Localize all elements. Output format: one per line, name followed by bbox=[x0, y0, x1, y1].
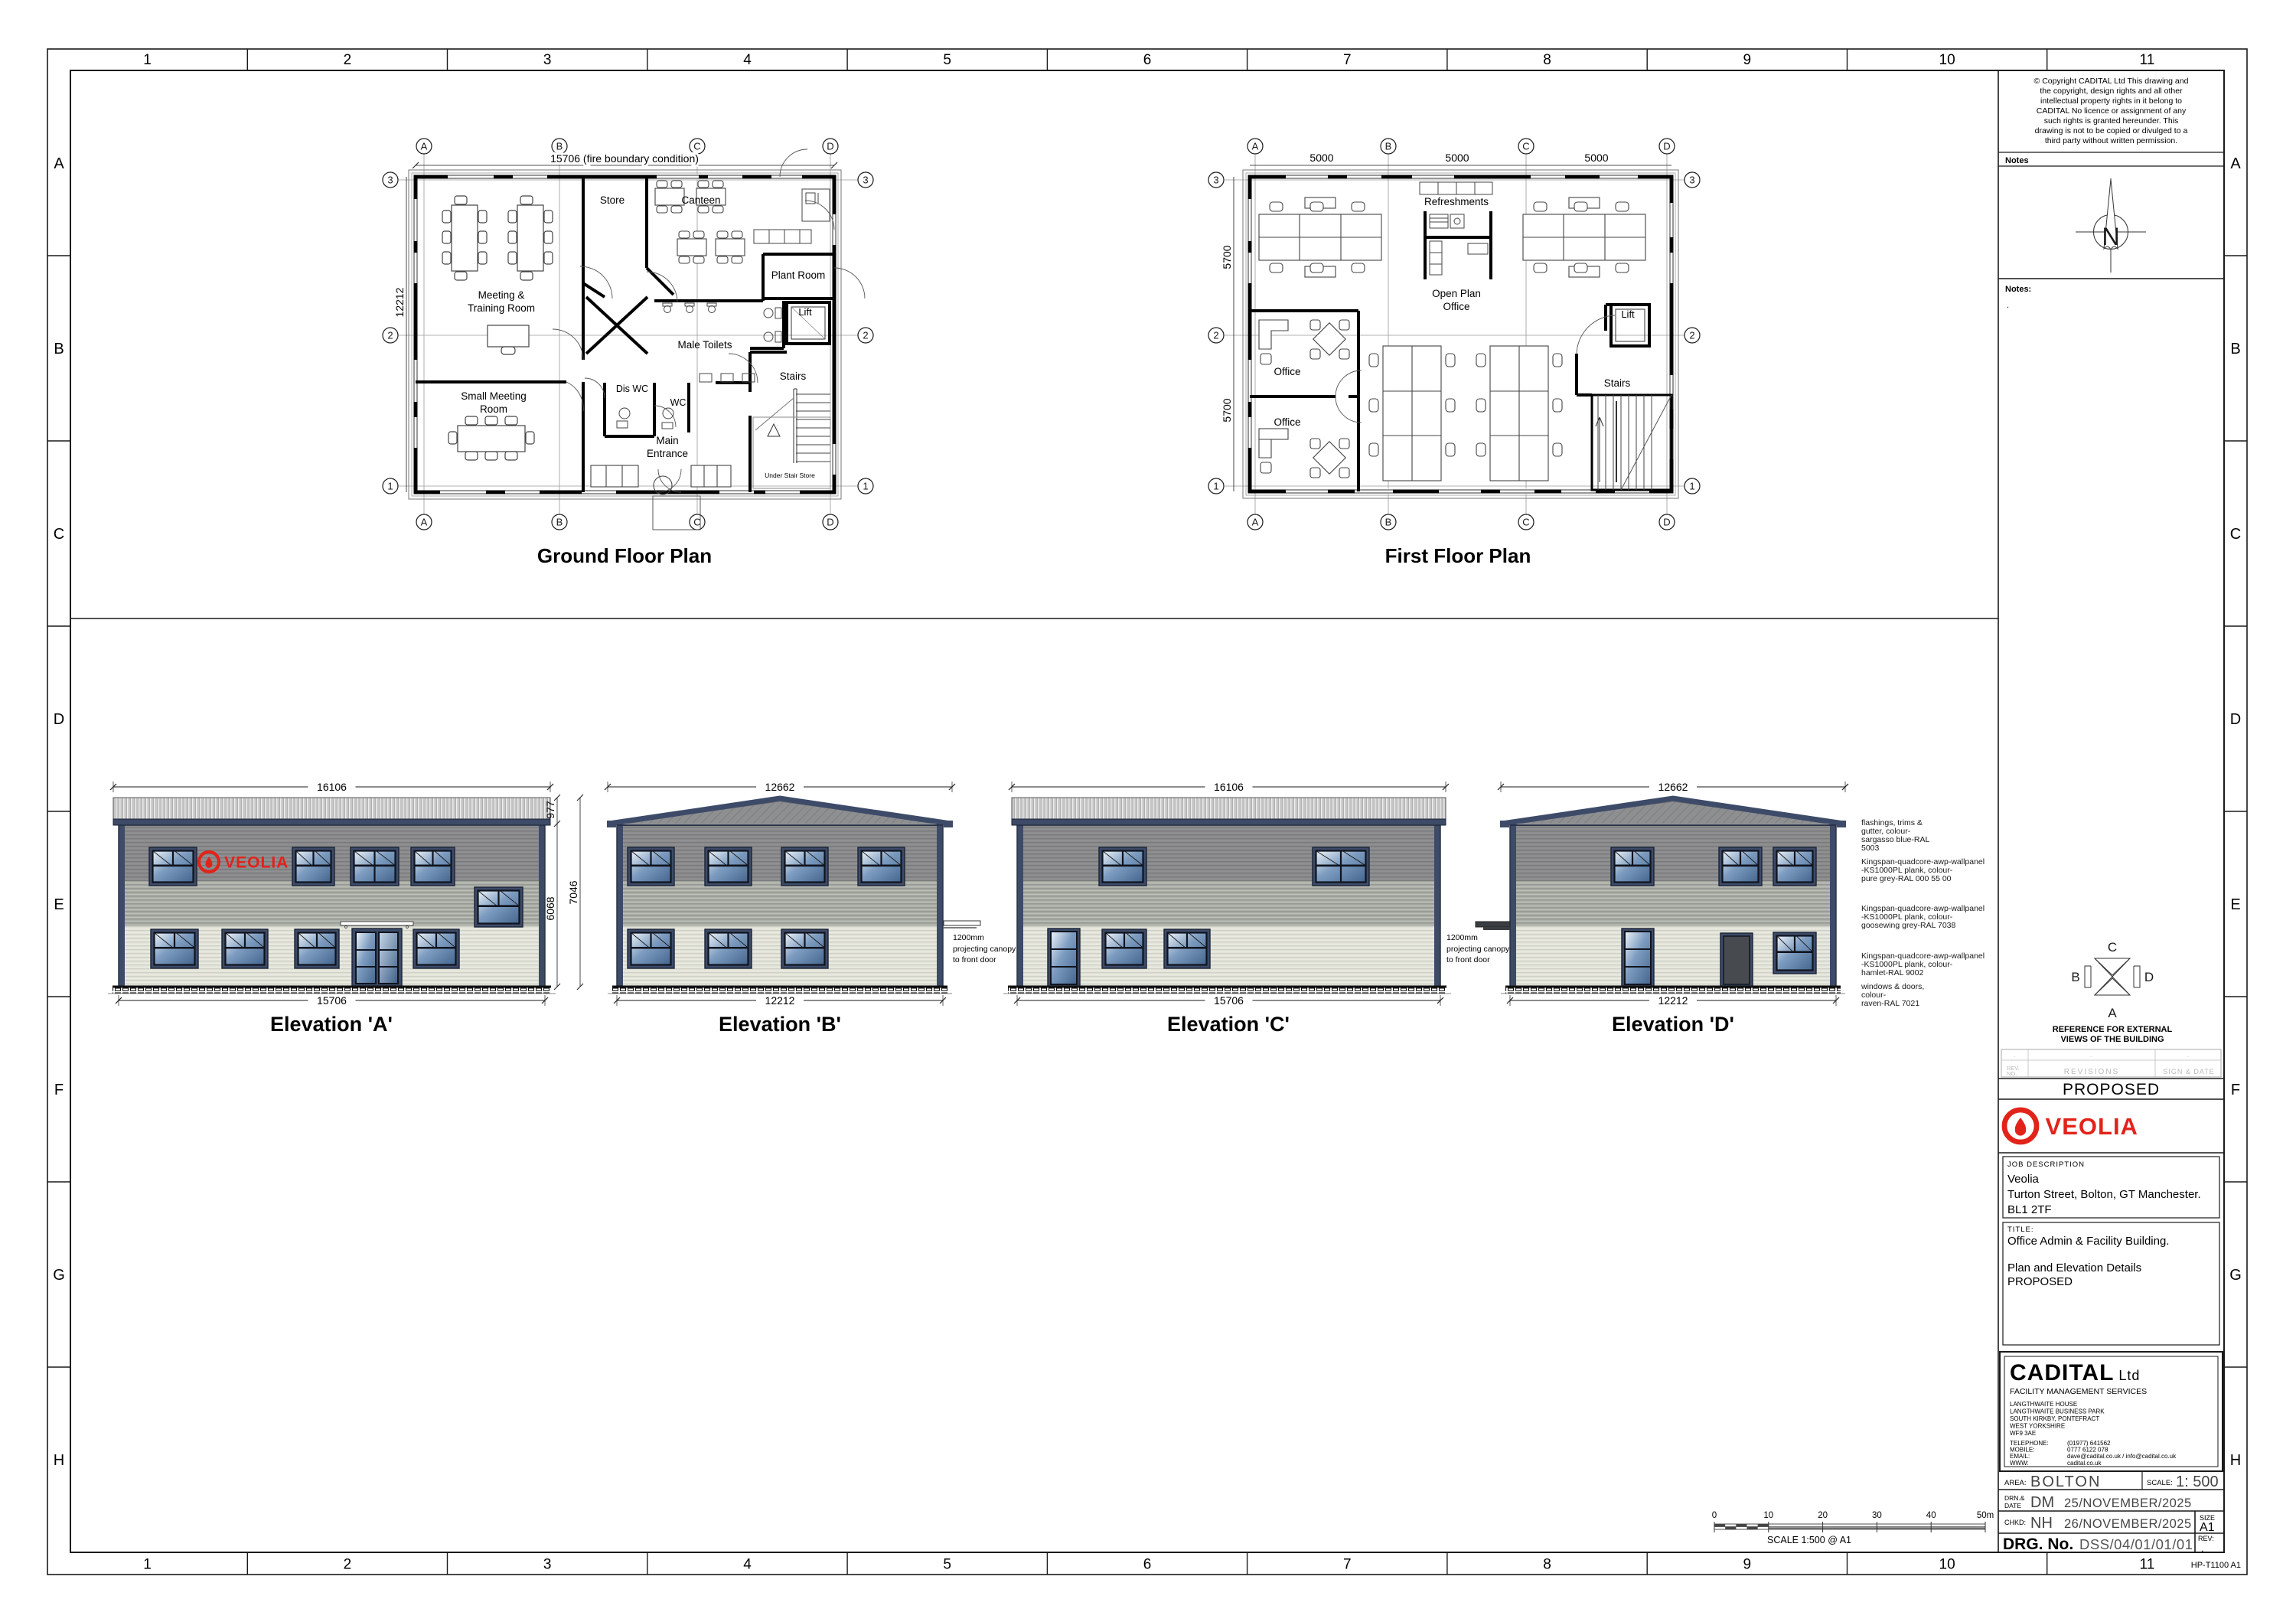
svg-text:6068: 6068 bbox=[544, 896, 556, 920]
svg-text:1200mm: 1200mm bbox=[1446, 933, 1478, 942]
svg-text:N: N bbox=[2102, 223, 2119, 250]
svg-text:5700: 5700 bbox=[1221, 245, 1233, 269]
svg-text:3: 3 bbox=[387, 175, 393, 186]
svg-text:Open Plan: Open Plan bbox=[1432, 288, 1481, 299]
svg-text:SOUTH KIRKBY, PONTEFRACT: SOUTH KIRKBY, PONTEFRACT bbox=[2010, 1415, 2099, 1422]
svg-text:C: C bbox=[693, 141, 700, 152]
svg-text:D: D bbox=[1663, 141, 1670, 152]
svg-text:Canteen: Canteen bbox=[681, 194, 720, 206]
svg-text:B: B bbox=[1385, 517, 1392, 528]
svg-text:DSS/04/01/01/01: DSS/04/01/01/01 bbox=[2079, 1536, 2193, 1552]
svg-text:to front door: to front door bbox=[953, 955, 996, 964]
svg-text:Veolia: Veolia bbox=[2007, 1173, 2040, 1186]
svg-text:Room: Room bbox=[480, 403, 507, 415]
svg-text:.: . bbox=[2187, 1052, 2189, 1059]
svg-text:DATE: DATE bbox=[2004, 1502, 2021, 1509]
svg-text:H: H bbox=[2230, 1452, 2241, 1469]
svg-text:15706 (fire boundary condition: 15706 (fire boundary condition) bbox=[550, 152, 699, 165]
svg-text:.: . bbox=[2007, 301, 2009, 310]
svg-text:16106: 16106 bbox=[317, 781, 347, 793]
svg-text:D: D bbox=[54, 711, 64, 728]
svg-text:3: 3 bbox=[1689, 175, 1694, 186]
svg-text:12212: 12212 bbox=[393, 287, 406, 317]
svg-text:Elevation 'C': Elevation 'C' bbox=[1167, 1013, 1290, 1036]
svg-text:1: 500: 1: 500 bbox=[2176, 1474, 2219, 1490]
svg-text:BL1 2TF: BL1 2TF bbox=[2007, 1203, 2052, 1216]
svg-text:WC: WC bbox=[670, 397, 687, 408]
svg-text:Turton Street, Bolton, GT Manc: Turton Street, Bolton, GT Manchester. bbox=[2007, 1188, 2201, 1201]
svg-text:B: B bbox=[556, 517, 563, 528]
svg-text:15706: 15706 bbox=[317, 994, 347, 1007]
svg-text:G: G bbox=[2229, 1267, 2242, 1284]
svg-text:4: 4 bbox=[743, 1557, 752, 1573]
svg-text:BOLTON: BOLTON bbox=[2030, 1474, 2101, 1490]
svg-text:11: 11 bbox=[2140, 52, 2155, 68]
svg-text:pure grey-RAL 000 55 00: pure grey-RAL 000 55 00 bbox=[1861, 874, 1952, 883]
svg-text:12662: 12662 bbox=[1658, 781, 1688, 793]
svg-text:Office Admin & Facility Buildi: Office Admin & Facility Building. bbox=[2007, 1235, 2169, 1248]
svg-text:10: 10 bbox=[1939, 52, 1955, 68]
svg-text:C: C bbox=[2108, 940, 2117, 955]
svg-text:A: A bbox=[421, 141, 428, 152]
svg-text:3: 3 bbox=[863, 175, 868, 186]
svg-text:Lift: Lift bbox=[798, 306, 812, 318]
svg-text:Plant Room: Plant Room bbox=[771, 269, 826, 281]
svg-text:CADITAL No licence or assignme: CADITAL No licence or assignment of any bbox=[2037, 106, 2187, 116]
svg-text:B: B bbox=[54, 341, 64, 357]
svg-text:CHKD:: CHKD: bbox=[2004, 1519, 2026, 1526]
svg-text:6: 6 bbox=[1143, 52, 1152, 68]
svg-text:977: 977 bbox=[544, 801, 556, 819]
svg-text:15706: 15706 bbox=[1214, 994, 1244, 1007]
svg-text:1: 1 bbox=[1213, 481, 1218, 492]
svg-text:12212: 12212 bbox=[1658, 994, 1688, 1007]
svg-text:2: 2 bbox=[1213, 330, 1218, 341]
svg-text:A: A bbox=[421, 517, 428, 528]
svg-text:Store: Store bbox=[600, 194, 625, 206]
svg-text:A: A bbox=[1252, 517, 1259, 528]
svg-text:A: A bbox=[2230, 155, 2241, 172]
svg-text:B: B bbox=[556, 141, 563, 152]
svg-text:D: D bbox=[2144, 970, 2154, 984]
svg-text:7: 7 bbox=[1343, 1557, 1352, 1573]
svg-text:3: 3 bbox=[543, 1557, 552, 1573]
svg-text:F: F bbox=[2231, 1082, 2240, 1098]
svg-text:the copyright, design rights a: the copyright, design rights and all oth… bbox=[2040, 86, 2183, 96]
svg-text:Elevation 'D': Elevation 'D' bbox=[1612, 1013, 1734, 1036]
svg-text:REFERENCE FOR EXTERNAL: REFERENCE FOR EXTERNAL bbox=[2053, 1025, 2173, 1034]
svg-text:A1: A1 bbox=[2200, 1521, 2215, 1534]
svg-text:A: A bbox=[1252, 141, 1259, 152]
svg-text:6: 6 bbox=[1143, 1557, 1152, 1573]
svg-text:First Floor Plan: First Floor Plan bbox=[1385, 544, 1531, 567]
svg-text:7: 7 bbox=[1343, 52, 1352, 68]
svg-text:D: D bbox=[1663, 517, 1670, 528]
svg-text:LANGTHWAITE BUSINESS PARK: LANGTHWAITE BUSINESS PARK bbox=[2010, 1408, 2105, 1415]
svg-text:20: 20 bbox=[1818, 1511, 1828, 1520]
svg-text:SCALE:: SCALE: bbox=[2147, 1479, 2173, 1487]
svg-text:3: 3 bbox=[1213, 175, 1218, 186]
svg-text:50m: 50m bbox=[1977, 1511, 1994, 1520]
svg-text:DRG. No.: DRG. No. bbox=[2003, 1536, 2073, 1553]
svg-text:Stairs: Stairs bbox=[1604, 377, 1631, 389]
svg-text:26/NOVEMBER/2025: 26/NOVEMBER/2025 bbox=[2064, 1517, 2192, 1531]
svg-text:5000: 5000 bbox=[1445, 152, 1469, 164]
svg-text:projecting canopy: projecting canopy bbox=[953, 945, 1016, 954]
svg-text:Dis WC: Dis WC bbox=[616, 383, 648, 394]
svg-text:.: . bbox=[2090, 1052, 2092, 1059]
svg-text:Small Meeting: Small Meeting bbox=[461, 390, 527, 402]
svg-text:Elevation 'A': Elevation 'A' bbox=[270, 1013, 393, 1036]
svg-text:goosewing grey-RAL 7038: goosewing grey-RAL 7038 bbox=[1861, 921, 1956, 930]
svg-text:2: 2 bbox=[344, 52, 352, 68]
svg-text:.: . bbox=[2201, 1543, 2203, 1554]
svg-text:Training Room: Training Room bbox=[468, 302, 535, 314]
svg-text:VEOLIA: VEOLIA bbox=[224, 854, 289, 872]
svg-text:raven-RAL 7021: raven-RAL 7021 bbox=[1861, 999, 1919, 1008]
svg-text:C: C bbox=[693, 517, 700, 528]
svg-text:D: D bbox=[827, 517, 833, 528]
svg-text:5003: 5003 bbox=[1861, 844, 1880, 853]
svg-text:Meeting &: Meeting & bbox=[478, 289, 525, 301]
svg-text:7046: 7046 bbox=[567, 880, 579, 904]
svg-text:A: A bbox=[2108, 1006, 2117, 1020]
svg-text:A: A bbox=[54, 155, 64, 172]
svg-text:NH: NH bbox=[2030, 1515, 2053, 1532]
svg-text:TITLE:: TITLE: bbox=[2007, 1225, 2034, 1234]
svg-text:HP-T1100 A1: HP-T1100 A1 bbox=[2191, 1561, 2241, 1570]
svg-text:Notes: Notes bbox=[2005, 156, 2029, 165]
svg-text:9: 9 bbox=[1743, 52, 1752, 68]
svg-text:G: G bbox=[53, 1267, 65, 1284]
svg-text:D: D bbox=[2230, 711, 2241, 728]
svg-text:12662: 12662 bbox=[765, 781, 795, 793]
svg-text:B: B bbox=[2230, 341, 2240, 357]
svg-text:hamlet-RAL 9002: hamlet-RAL 9002 bbox=[1861, 968, 1923, 977]
svg-text:1: 1 bbox=[143, 1557, 152, 1573]
svg-text:5: 5 bbox=[943, 1557, 951, 1573]
svg-text:Ground Floor Plan: Ground Floor Plan bbox=[537, 544, 712, 567]
svg-text:Entrance: Entrance bbox=[647, 448, 688, 459]
svg-text:5000: 5000 bbox=[1309, 152, 1333, 164]
svg-text:VEOLIA: VEOLIA bbox=[2046, 1113, 2138, 1140]
svg-text:2: 2 bbox=[863, 330, 868, 341]
svg-text:SIGN & DATE: SIGN & DATE bbox=[2163, 1068, 2214, 1075]
svg-text:C: C bbox=[2230, 526, 2241, 543]
svg-text:C: C bbox=[1522, 141, 1529, 152]
svg-text:1: 1 bbox=[387, 481, 393, 492]
svg-text:F: F bbox=[54, 1082, 64, 1098]
svg-text:Office: Office bbox=[1274, 416, 1300, 428]
svg-text:E: E bbox=[2230, 896, 2240, 913]
svg-text:8: 8 bbox=[1543, 1557, 1551, 1573]
svg-text:Office: Office bbox=[1274, 366, 1300, 377]
svg-text:Main: Main bbox=[656, 435, 678, 446]
svg-text:WEST YORKSHIRE: WEST YORKSHIRE bbox=[2010, 1423, 2065, 1430]
svg-text:C: C bbox=[1522, 517, 1529, 528]
svg-text:JOB DESCRIPTION: JOB DESCRIPTION bbox=[2007, 1160, 2085, 1169]
svg-text:Male Toilets: Male Toilets bbox=[677, 339, 732, 351]
svg-text:Lift: Lift bbox=[1621, 308, 1635, 320]
svg-text:Notes:: Notes: bbox=[2005, 285, 2031, 294]
svg-text:PROPOSED: PROPOSED bbox=[2007, 1275, 2073, 1288]
svg-text:B: B bbox=[1385, 141, 1392, 152]
svg-text:2: 2 bbox=[1689, 330, 1694, 341]
svg-text:40: 40 bbox=[1926, 1511, 1936, 1520]
svg-text:E: E bbox=[54, 896, 64, 913]
svg-text:projecting canopy: projecting canopy bbox=[1446, 945, 1510, 954]
svg-text:1200mm: 1200mm bbox=[953, 933, 984, 942]
svg-text:4: 4 bbox=[743, 52, 752, 68]
svg-text:SCALE 1:500 @ A1: SCALE 1:500 @ A1 bbox=[1767, 1535, 1851, 1545]
svg-text:drawing is not to be copied or: drawing is not to be copied or divulged … bbox=[2035, 126, 2188, 135]
svg-text:REVISIONS: REVISIONS bbox=[2064, 1068, 2119, 1076]
svg-text:DRN.&: DRN.& bbox=[2004, 1494, 2025, 1502]
svg-text:© Copyright CADITAL Ltd This: © Copyright CADITAL Ltd This drawing and bbox=[2034, 77, 2189, 86]
svg-text:LANGTHWAITE HOUSE: LANGTHWAITE HOUSE bbox=[2010, 1401, 2077, 1408]
svg-text:1: 1 bbox=[863, 481, 868, 492]
svg-text:8: 8 bbox=[1543, 52, 1551, 68]
svg-text:5000: 5000 bbox=[1584, 152, 1608, 164]
svg-text:Refreshments: Refreshments bbox=[1424, 196, 1489, 207]
svg-text:AREA:: AREA: bbox=[2004, 1479, 2027, 1487]
svg-text:Plan and Elevation Details: Plan and Elevation Details bbox=[2007, 1261, 2141, 1274]
svg-text:10: 10 bbox=[1763, 1511, 1773, 1520]
svg-text:.: . bbox=[2014, 1052, 2015, 1059]
svg-text:1: 1 bbox=[1689, 481, 1694, 492]
svg-text:2: 2 bbox=[344, 1557, 352, 1573]
svg-text:Elevation 'B': Elevation 'B' bbox=[719, 1013, 841, 1036]
svg-text:25/NOVEMBER/2025: 25/NOVEMBER/2025 bbox=[2064, 1496, 2192, 1510]
svg-text:11: 11 bbox=[2140, 1557, 2155, 1573]
svg-text:5700: 5700 bbox=[1221, 398, 1233, 422]
svg-text:D: D bbox=[827, 141, 833, 152]
svg-text:intellectual property rights i: intellectual property rights in it belon… bbox=[2040, 96, 2182, 106]
svg-text:Stairs: Stairs bbox=[780, 370, 807, 382]
svg-text:16106: 16106 bbox=[1214, 781, 1244, 793]
svg-text:NO.: NO. bbox=[2007, 1070, 2017, 1077]
svg-text:1: 1 bbox=[143, 52, 152, 68]
svg-text:third party without written pe: third party without written permission. bbox=[2045, 136, 2177, 145]
svg-text:REV:: REV: bbox=[2198, 1535, 2214, 1542]
svg-text:PROPOSED: PROPOSED bbox=[2063, 1081, 2160, 1098]
svg-text:30: 30 bbox=[1872, 1511, 1882, 1520]
svg-text:cadital.co.uk: cadital.co.uk bbox=[2067, 1460, 2102, 1467]
svg-text:such rights is granted hereund: such rights is granted hereunder. This bbox=[2044, 116, 2179, 126]
svg-text:DM: DM bbox=[2030, 1494, 2054, 1511]
svg-text:5: 5 bbox=[943, 52, 951, 68]
svg-text:2: 2 bbox=[387, 330, 393, 341]
svg-text:H: H bbox=[54, 1452, 64, 1469]
svg-text:12212: 12212 bbox=[765, 994, 795, 1007]
svg-text:3: 3 bbox=[543, 52, 552, 68]
svg-text:to front door: to front door bbox=[1446, 955, 1490, 964]
svg-text:FACILITY MANAGEMENT SERVICES: FACILITY MANAGEMENT SERVICES bbox=[2010, 1387, 2147, 1396]
svg-text:Office: Office bbox=[1443, 301, 1469, 312]
svg-text:WF9 3AE: WF9 3AE bbox=[2010, 1430, 2036, 1437]
svg-text:10: 10 bbox=[1939, 1557, 1955, 1573]
svg-text:Under Stair Store: Under Stair Store bbox=[765, 472, 815, 479]
svg-text:0: 0 bbox=[1712, 1511, 1717, 1520]
svg-text:VIEWS OF THE BUILDING: VIEWS OF THE BUILDING bbox=[2060, 1035, 2164, 1044]
svg-text:C: C bbox=[54, 526, 64, 543]
svg-text:WWW:: WWW: bbox=[2010, 1460, 2029, 1467]
svg-text:9: 9 bbox=[1743, 1557, 1752, 1573]
svg-text:B: B bbox=[2071, 970, 2079, 984]
